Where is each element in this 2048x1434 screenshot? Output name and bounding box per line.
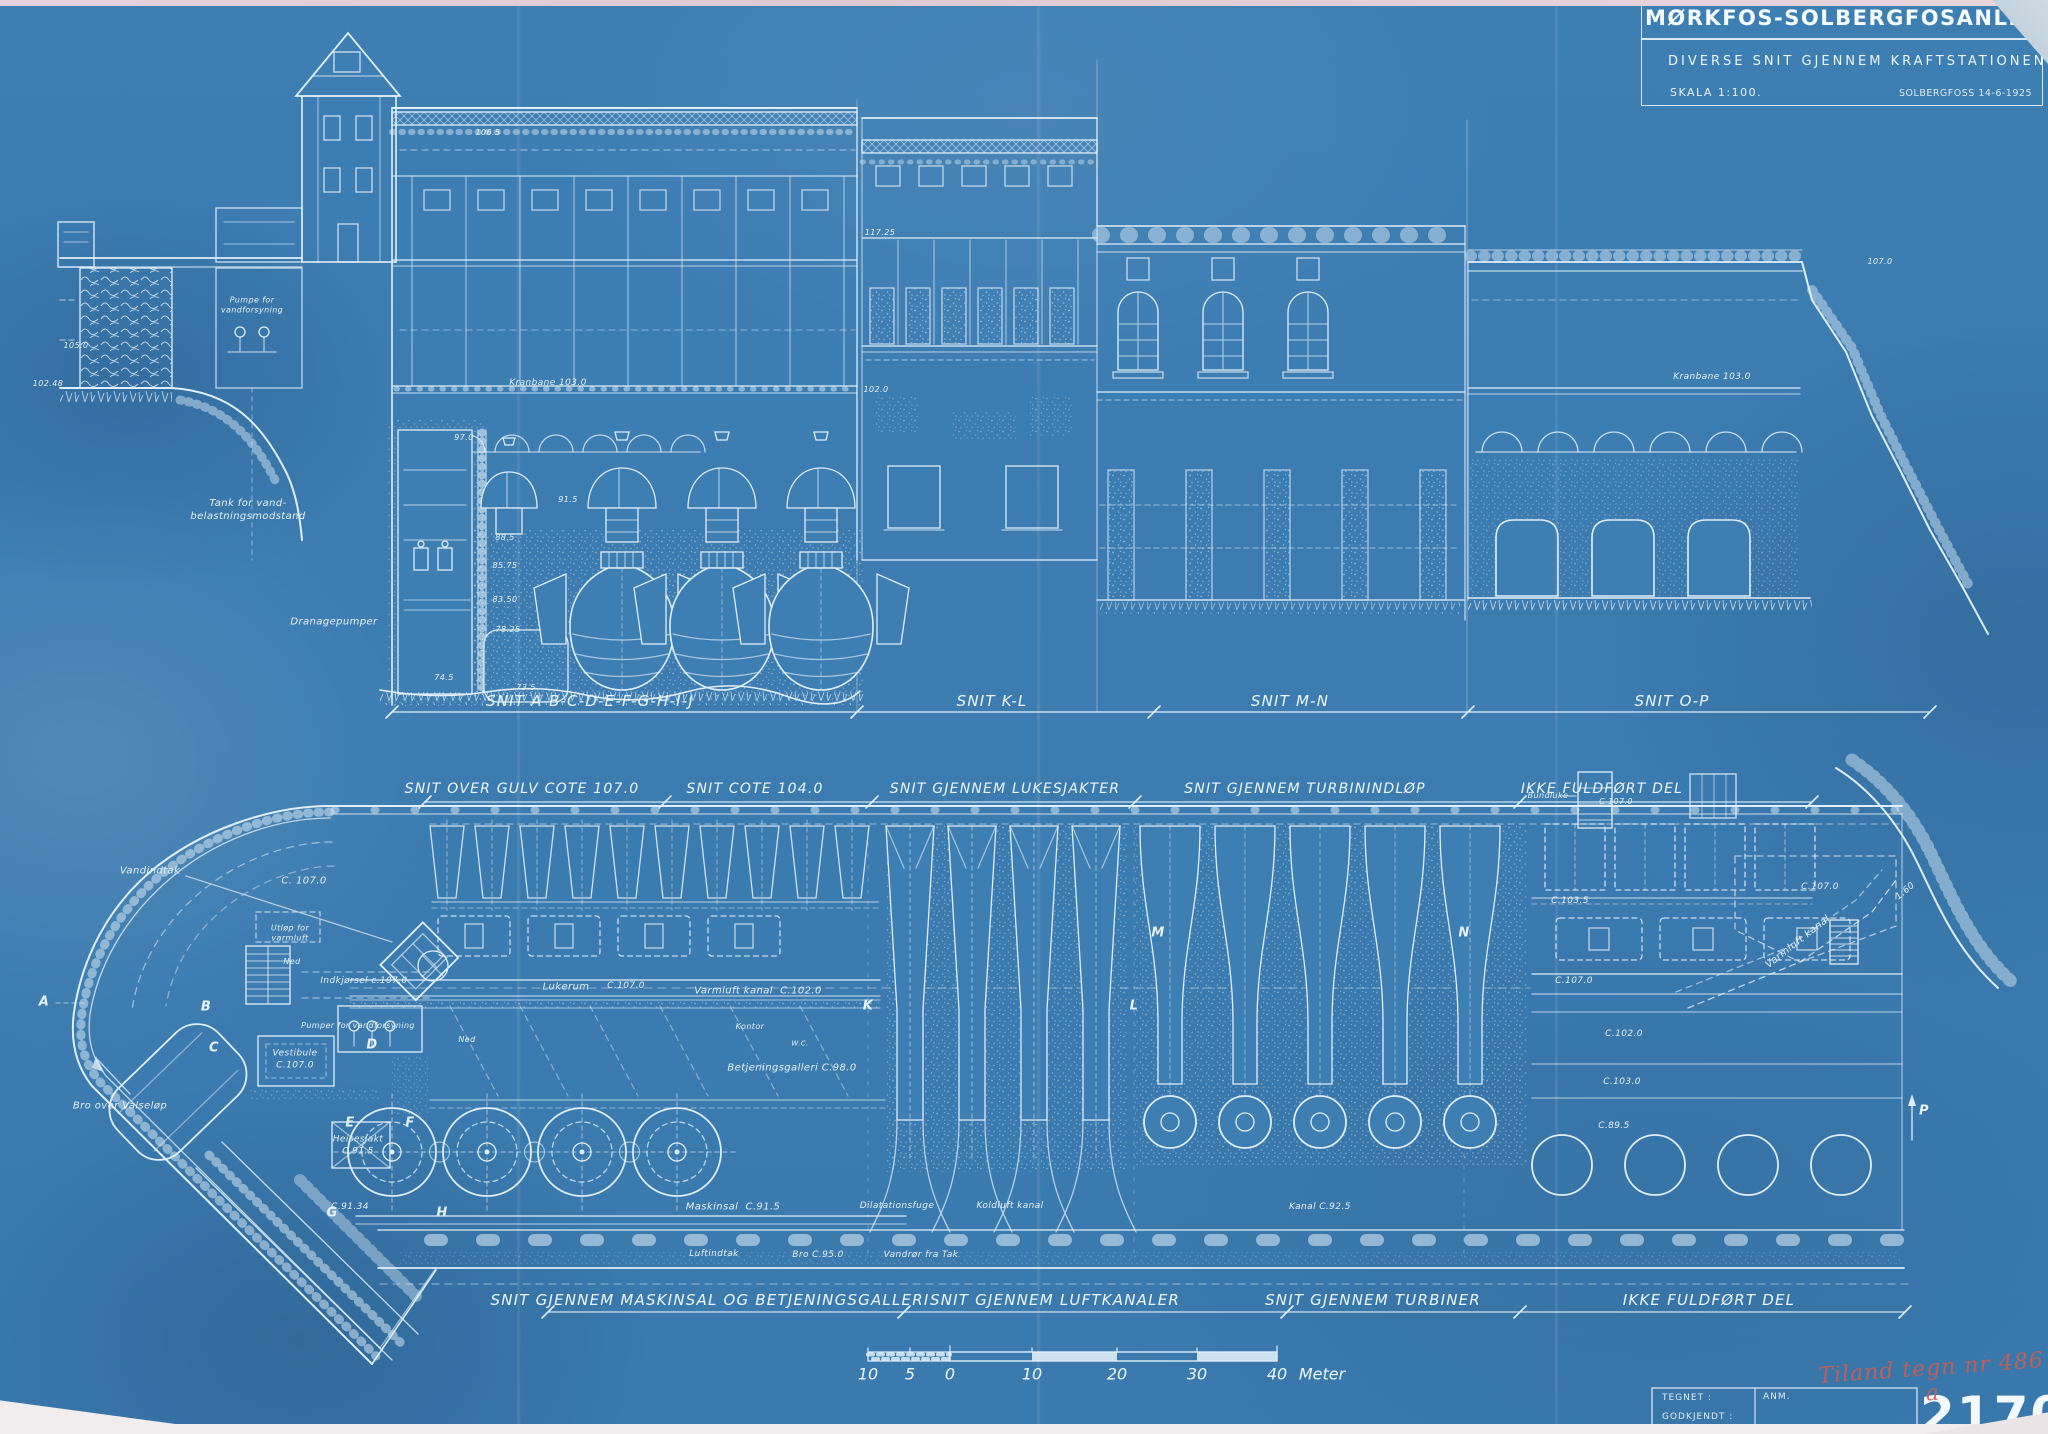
- plan-label-maskinsal: SNIT GJENNEM MASKINSAL OG BETJENINGSGALL…: [491, 1291, 930, 1309]
- elevation-label: C 107.0: [1599, 797, 1633, 807]
- elevation-label: Kranbane 103.0: [1673, 372, 1751, 384]
- room-label: Kanal C.92.5: [1289, 1202, 1351, 1214]
- section-point-letter: K: [863, 999, 873, 1016]
- elevation-label: C. 107.0: [281, 875, 326, 888]
- section-point-letter: B: [201, 1000, 211, 1017]
- section-point-letter: G: [326, 1206, 337, 1223]
- elevation-label: 102.0: [864, 385, 889, 395]
- room-label: Vandindtak: [120, 865, 180, 878]
- paper-crease: [1036, 0, 1041, 1434]
- godkjendt-label: GODKJENDT :: [1662, 1412, 1733, 1422]
- elevation-label: 85.75: [493, 561, 518, 571]
- plan-label-lukesjakter: SNIT GJENNEM LUKESJAKTER: [890, 781, 1120, 797]
- plan-label-over-gulv: SNIT OVER GULV COTE 107.0: [405, 781, 640, 797]
- room-label: Pumper for vandforsyning: [301, 1021, 415, 1031]
- elevation-label: 102.48: [33, 379, 63, 389]
- elevation-label: C.102.0: [1605, 1029, 1643, 1041]
- room-label: Heisesjakt C.91.5: [333, 1134, 383, 1157]
- room-label: Indkjørsel c.107.0: [320, 976, 407, 988]
- room-label: Koldluft kanal: [976, 1201, 1043, 1213]
- elevation-label: 97.0: [454, 433, 473, 443]
- plan-label-cote-104: SNIT COTE 104.0: [686, 781, 823, 797]
- elevation-label: C.107.0: [1555, 976, 1593, 988]
- section-label-mn: SNIT M-N: [1251, 692, 1329, 710]
- section-point-letter: H: [436, 1206, 447, 1223]
- anm-label: ANM.: [1763, 1392, 1791, 1402]
- room-label: Vandrør fra Tak: [884, 1250, 959, 1262]
- room-label: Betjeningsgalleri C.98.0: [727, 1062, 856, 1075]
- drawing-title: MØRKFOS-SOLBERGFOSANLEGGET: [1645, 6, 2041, 30]
- elevation-label: 107.0: [1868, 257, 1893, 267]
- drawing-place-date: SOLBERGFOSS 14-6-1925: [1880, 88, 2032, 99]
- room-label: Bro over Valseløp: [73, 1100, 167, 1113]
- drawing-subtitle: DIVERSE SNIT GJENNEM KRAFTSTATIONEN: [1668, 54, 2046, 69]
- room-label: Vestibule C.107.0: [273, 1048, 318, 1071]
- room-label: Dilatationsfuge: [860, 1201, 935, 1213]
- scale-tick: 30: [1187, 1365, 1207, 1384]
- elevation-label: C.89.5: [1598, 1121, 1630, 1133]
- scale-tick: 40: [1267, 1365, 1287, 1384]
- section-point-letter: N: [1458, 926, 1469, 943]
- elevation-label: 74.5: [434, 673, 453, 683]
- elevation-label: 91.5: [558, 495, 577, 505]
- paper-edge-top: [0, 0, 2048, 6]
- room-label: Ned: [458, 1035, 475, 1045]
- room-label: Pumpe for vandforsyning: [221, 296, 283, 317]
- room-label: Dranagepumper: [290, 616, 377, 629]
- tegnet-label: TEGNET :: [1662, 1393, 1712, 1403]
- elevation-label: C.103.0: [1603, 1077, 1641, 1089]
- scale-tick: 20: [1107, 1365, 1127, 1384]
- room-label: Kontor: [736, 1022, 765, 1032]
- section-point-letter: A: [39, 995, 49, 1012]
- blueprint-linework: [0, 0, 2048, 1434]
- section-point-letter: P: [1919, 1104, 1929, 1121]
- scale-tick: 0: [945, 1365, 955, 1384]
- room-label: Maskinsal C.91.5: [686, 1201, 781, 1214]
- section-point-letter: E: [345, 1116, 354, 1133]
- room-label: Lukerum: [543, 981, 590, 994]
- room-label: Utløp for varmluft: [271, 924, 309, 945]
- room-label: Tank for vand- belastningsmodstand: [190, 497, 305, 523]
- elevation-label: 117.25: [865, 228, 895, 238]
- drawing-scale: SKALA 1:100.: [1670, 86, 1762, 99]
- elevation-label: C.107.0: [1801, 882, 1839, 894]
- section-label-kl: SNIT K-L: [957, 692, 1028, 710]
- scale-tick: 10: [858, 1365, 878, 1384]
- elevation-label: 106.5: [476, 128, 501, 138]
- room-label: W.C.: [791, 1039, 808, 1048]
- paper-edge-bottom: [0, 1424, 2048, 1434]
- room-label: Bundluke: [1528, 791, 1569, 801]
- section-point-letter: C: [209, 1041, 219, 1058]
- room-label: Bro C.95.0: [792, 1250, 843, 1262]
- room-label: Varmluft kanal C.102.0: [694, 985, 821, 998]
- elevation-label: 88.5: [495, 533, 514, 543]
- elevation-label: C.107.0: [607, 981, 645, 993]
- section-point-letter: F: [405, 1116, 414, 1133]
- plan-label-luftkanaler: SNIT GJENNEM LUFTKANALER: [930, 1291, 1180, 1309]
- scale-tick: 5: [905, 1365, 915, 1384]
- blueprint-sheet: MØRKFOS-SOLBERGFOSANLEGGET DIVERSE SNIT …: [0, 0, 2048, 1434]
- elevation-label: 105.0: [64, 341, 89, 351]
- plan-label-turbinindlop: SNIT GJENNEM TURBININDLØP: [1184, 781, 1426, 797]
- section-point-letter: L: [1130, 999, 1139, 1016]
- section-point-letter: D: [366, 1038, 377, 1055]
- room-label: Ned: [283, 957, 300, 967]
- section-label-op: SNIT O-P: [1635, 692, 1710, 710]
- paper-crease: [516, 0, 521, 1434]
- paper-crease: [1554, 0, 1559, 1434]
- plan-label-ikke-fuldfort-bottom: IKKE FULDFØRT DEL: [1623, 1291, 1795, 1309]
- room-label: Luftindtak: [689, 1249, 739, 1261]
- scale-unit: Meter: [1299, 1365, 1345, 1384]
- section-point-letter: M: [1151, 926, 1164, 943]
- plan-label-turbiner: SNIT GJENNEM TURBINER: [1265, 1291, 1481, 1309]
- elevation-label: 83.50: [493, 595, 518, 605]
